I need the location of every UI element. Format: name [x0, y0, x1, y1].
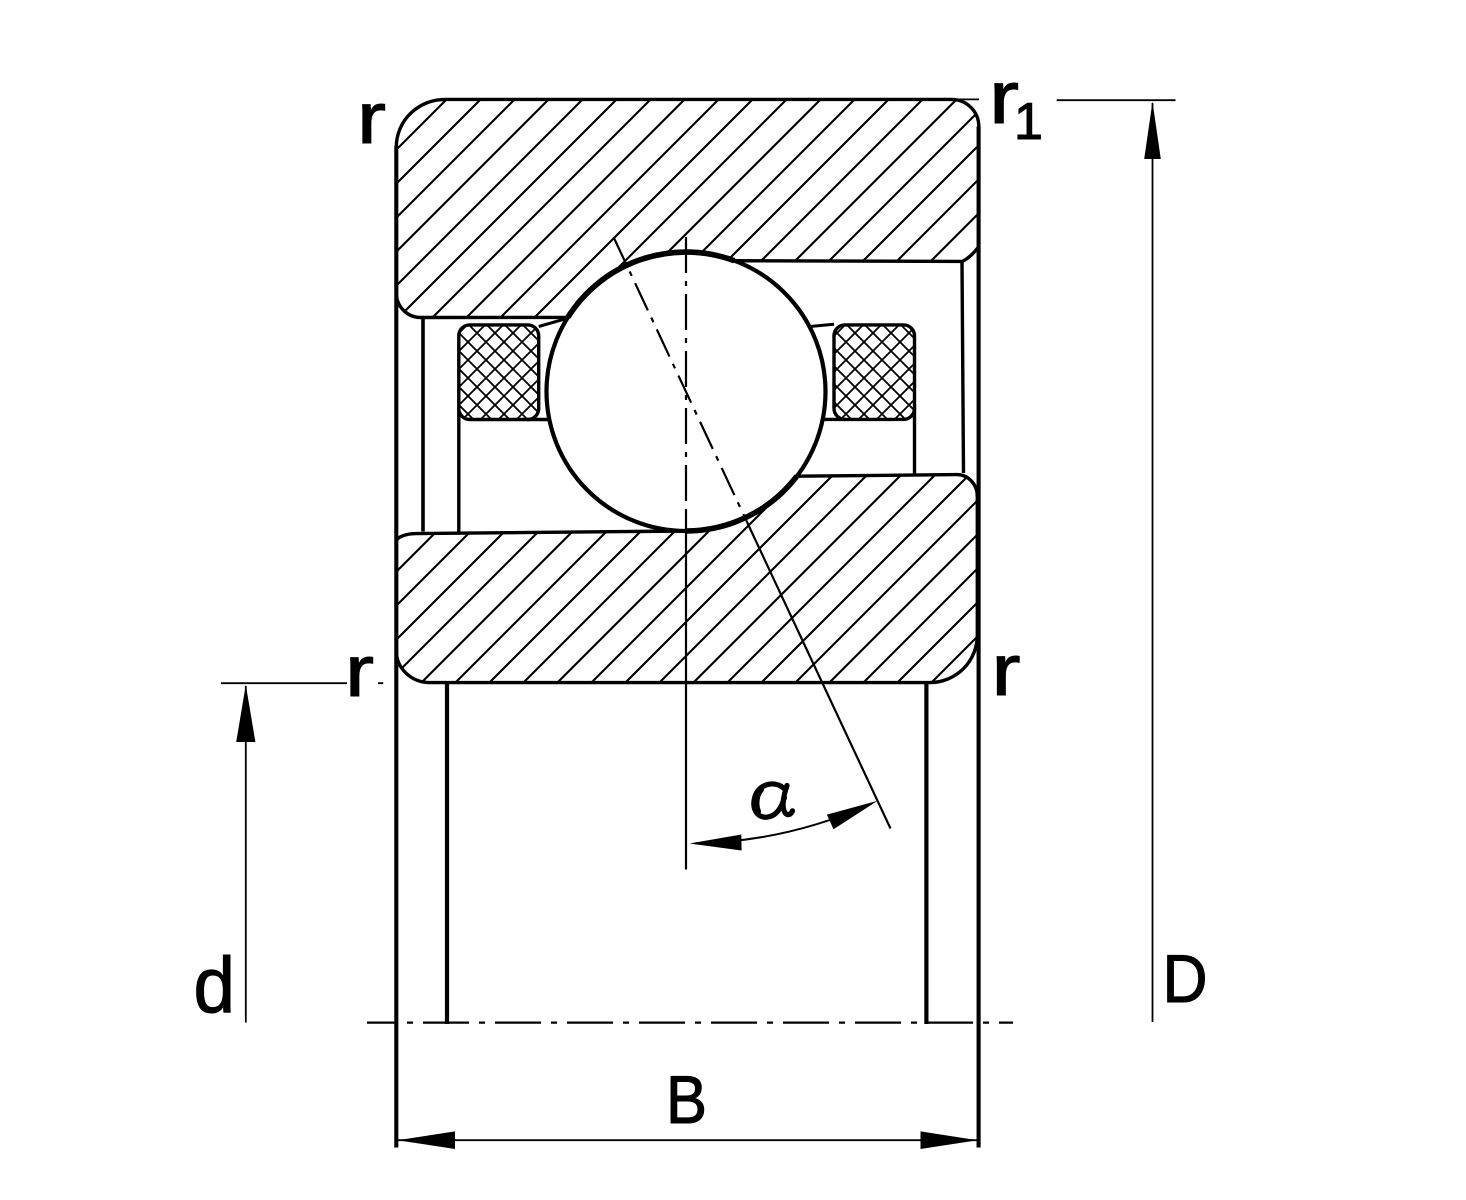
svg-text:1: 1 — [1014, 93, 1043, 151]
svg-text:r: r — [357, 79, 386, 159]
svg-text:D: D — [1163, 941, 1208, 1017]
svg-text:d: d — [194, 940, 236, 1029]
svg-text:r: r — [992, 631, 1021, 711]
svg-text:B: B — [666, 1062, 707, 1138]
svg-text:r: r — [345, 632, 374, 712]
